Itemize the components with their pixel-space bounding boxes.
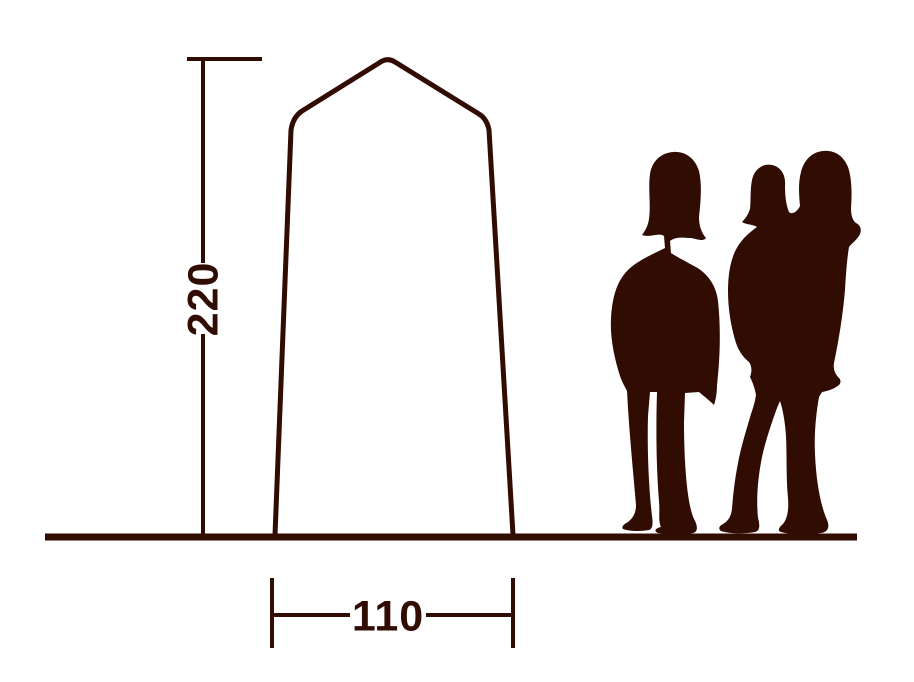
people-silhouettes [611,151,861,535]
adult-carrying-child-silhouette [719,151,861,535]
height-dimension: 220 [179,59,262,535]
height-dimension-value: 220 [179,262,227,337]
diagram-canvas: 220 110 [0,0,914,682]
dimension-diagram: 220 110 [0,0,914,682]
width-dimension: 110 [272,578,513,648]
tent-outline [275,60,513,535]
width-dimension-value: 110 [352,592,424,640]
adult-silhouette [611,152,720,535]
